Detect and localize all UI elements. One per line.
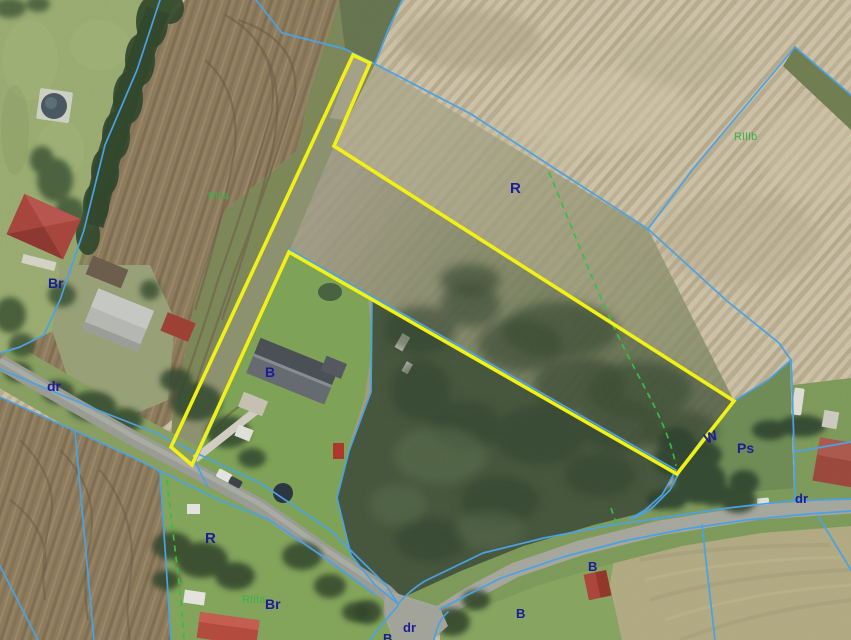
svg-text:dr: dr [47,378,62,394]
svg-text:Ps: Ps [737,440,754,456]
svg-text:B: B [265,364,275,380]
svg-text:RIIIa: RIIIa [208,191,230,202]
svg-text:RIIIb: RIIIb [734,131,757,143]
svg-text:B: B [588,559,597,574]
svg-text:dr: dr [795,491,808,506]
svg-text:dr: dr [403,620,416,635]
svg-text:RIIIa: RIIIa [242,594,266,606]
svg-text:B: B [383,631,392,640]
svg-text:Br: Br [48,275,64,291]
svg-text:B: B [516,606,525,621]
svg-text:R: R [510,180,521,197]
svg-text:Br: Br [265,596,281,612]
svg-text:R: R [205,530,216,547]
